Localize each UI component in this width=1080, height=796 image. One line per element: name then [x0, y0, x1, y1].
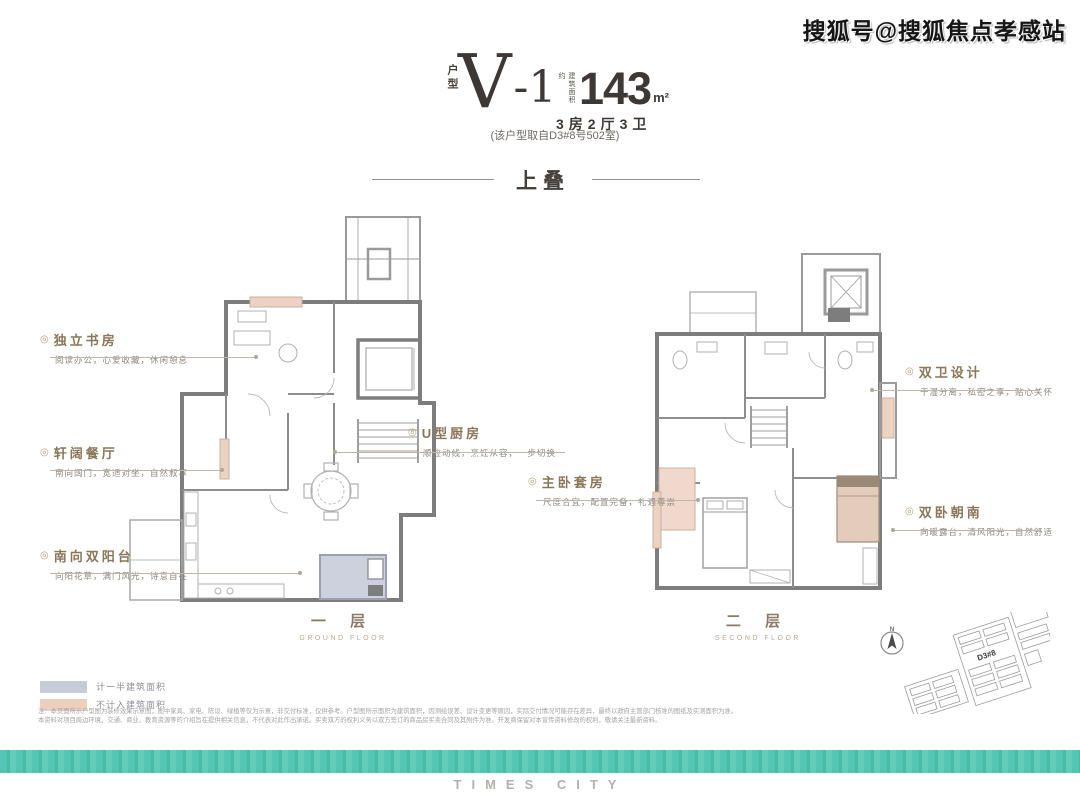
leader-line-south-bedrooms: [893, 530, 1040, 531]
footer-accent-band: [0, 750, 1080, 773]
disclaimer-line-1: 注：本页面所示户型图为装修效果示意图，图中家具、家电、陈设、绿植等仅为示意，非交…: [38, 708, 1044, 717]
plan2-outer-walls: [657, 334, 880, 588]
plan2-door-arcs: [725, 352, 825, 508]
plan2-bed-left: [703, 498, 747, 568]
leader-line-dining: [50, 470, 222, 471]
leader-dot-double-bath: [870, 388, 874, 392]
plan1-door-arcs: [248, 378, 334, 513]
plan2-bath-fixtures: [673, 342, 873, 369]
floor-label-second: 二 层 SECOND FLOOR: [703, 610, 813, 642]
area-block: 建筑面积约 143 m² 3房2厅3卫: [556, 66, 669, 134]
plan1-shaft: [358, 340, 420, 398]
unit-type-name-suffix: -1: [513, 66, 556, 110]
legend-swatch-half-area: [40, 681, 87, 693]
callout-marker-icon: ◎: [905, 506, 914, 517]
floor-plan-second: [645, 248, 930, 600]
unit-type-name-main: V: [458, 48, 511, 116]
callout-marker-icon: ◎: [40, 334, 49, 345]
leader-dot-double-balcony: [298, 571, 302, 575]
leader-line-master-suite: [536, 500, 698, 501]
leader-dot-kitchen: [333, 450, 337, 454]
plan2-bed-right: [837, 476, 879, 542]
svg-text:N: N: [890, 627, 894, 633]
svg-text:D3#8: D3#8: [976, 648, 997, 663]
leader-line-double-balcony: [50, 573, 300, 574]
brand-logo-text: TIMES CITY: [0, 777, 1080, 792]
callout-marker-icon: ◎: [408, 427, 417, 438]
plan1-bay-windows: [220, 297, 302, 479]
area-unit: m²: [653, 90, 669, 105]
leader-dot-master-suite: [696, 498, 700, 502]
plan2-roof-tower: [802, 254, 880, 334]
legend-row-half-area: 计一半建筑面积: [40, 680, 166, 693]
callout-study: ◎ 独立书房 阅读办公，心爱收藏，休闲憩息: [40, 330, 188, 366]
callout-south-bedrooms: ◎ 双卧朝南 向暖露台，清风阳光，自然舒适: [905, 502, 1053, 538]
floorplan-poster-page: 搜狐号@搜狐焦点孝感站 户型 V -1 建筑面积约 143 m² 3房2厅3卫 …: [0, 0, 1080, 796]
plan1-roof-tower: [346, 217, 420, 301]
leader-dot-study: [254, 355, 258, 359]
callout-marker-icon: ◎: [528, 476, 537, 487]
plan1-dining-table: [304, 463, 358, 520]
plan2-dormer: [690, 292, 756, 334]
unit-type-name: V -1: [458, 48, 556, 116]
area-value: 143: [579, 66, 651, 111]
disclaimer-line-2: 本资料对项目周边环境、交通、商业、教育资源等的介绍旨在提供相关信息，不代表对此作…: [38, 717, 1044, 726]
callout-master-suite: ◎ 主卧套房 尺度合宜，配置完备，礼遇尊崇: [528, 472, 676, 508]
site-plan-cluster-right: [1007, 612, 1050, 666]
leader-dot-south-bedrooms: [891, 528, 895, 532]
callout-kitchen: ◎ U型厨房 顺应动线，烹饪从容，一步切换: [408, 423, 556, 459]
plan2-wardrobes: [750, 548, 877, 584]
site-plan-map: D3#8: [900, 612, 1050, 714]
plan2-interior-walls: [657, 334, 880, 588]
leader-line-study: [50, 357, 256, 358]
leader-line-kitchen: [335, 452, 565, 453]
source-note: (该户型取自D3#8号502室): [430, 127, 680, 143]
disclaimer-text: 注：本页面所示户型图为装修效果示意图，图中家具、家电、陈设、绿植等仅为示意，非交…: [38, 708, 1044, 725]
callout-double-balcony: ◎ 南向双阳台 向阳花草，满门风光，诗意自在: [40, 546, 188, 582]
plan1-kitchen-counter: [184, 492, 284, 598]
section-title: 上叠: [500, 165, 586, 195]
section-rule-right: [592, 179, 700, 180]
plan2-stairs: [751, 406, 787, 448]
plan1-study-furniture: [234, 311, 297, 362]
site-plan-cluster-center: D3#8: [953, 617, 1031, 705]
callout-marker-icon: ◎: [40, 550, 49, 561]
leader-dot-dining: [220, 468, 224, 472]
leader-line-double-bath: [872, 390, 1040, 391]
floor-label-ground: 一 层 GROUND FLOOR: [288, 610, 398, 642]
callout-double-bath: ◎ 双卫设计 干湿分离，私密之享，贴心关怀: [905, 362, 1053, 398]
section-rule-left: [372, 179, 494, 180]
callout-marker-icon: ◎: [40, 447, 49, 458]
callout-dining: ◎ 轩阔餐厅 南向阔门，宽适对坐，自然叙享: [40, 443, 188, 479]
area-prefix-label: 建筑面积约: [556, 72, 576, 110]
plan1-balcony: [320, 555, 386, 599]
callout-marker-icon: ◎: [905, 366, 914, 377]
watermark: 搜狐号@搜狐焦点孝感站: [803, 12, 1066, 46]
